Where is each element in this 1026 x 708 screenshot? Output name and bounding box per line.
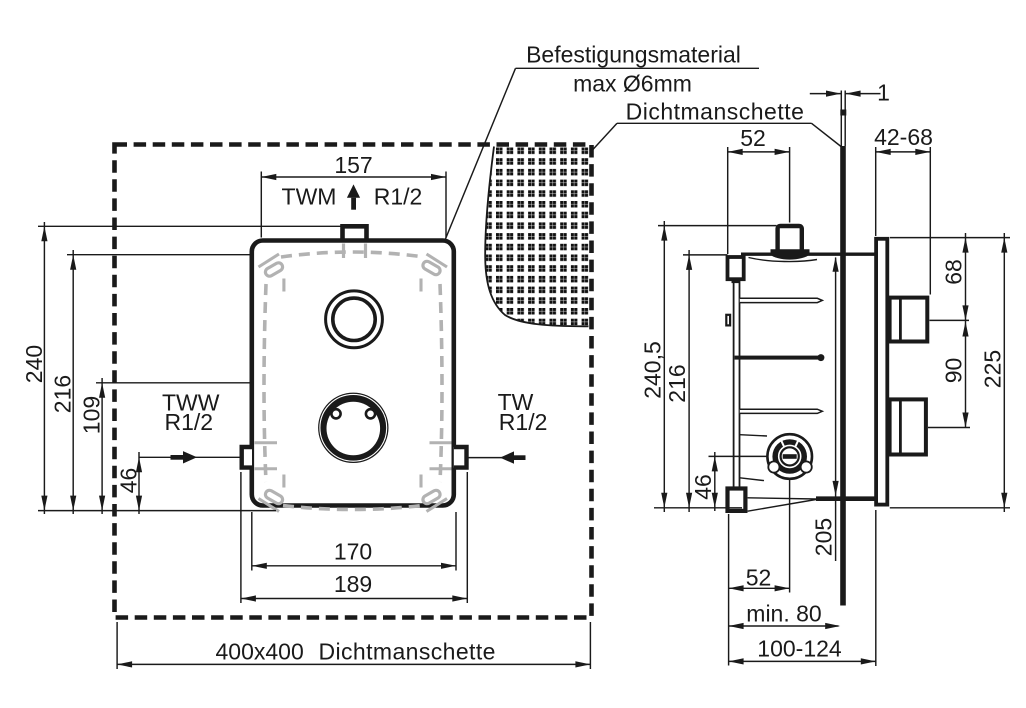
svg-text:R1/2: R1/2: [165, 409, 214, 435]
svg-text:max Ø6mm: max Ø6mm: [573, 71, 692, 97]
svg-text:R1/2: R1/2: [499, 409, 548, 435]
svg-text:TWM: TWM: [282, 183, 337, 209]
svg-text:R1/2: R1/2: [374, 183, 423, 209]
svg-text:109: 109: [79, 396, 105, 434]
svg-text:189: 189: [334, 571, 372, 597]
svg-text:240: 240: [21, 345, 47, 383]
svg-text:400x400: 400x400: [216, 638, 304, 664]
svg-text:min. 80: min. 80: [746, 601, 821, 627]
svg-text:216: 216: [664, 364, 690, 402]
svg-text:42-68: 42-68: [874, 124, 933, 150]
svg-text:Dichtmanschette: Dichtmanschette: [626, 98, 805, 124]
svg-text:46: 46: [116, 468, 142, 494]
svg-text:52: 52: [746, 565, 772, 591]
svg-text:46: 46: [690, 474, 716, 500]
svg-text:90: 90: [941, 358, 967, 384]
svg-text:216: 216: [50, 375, 76, 413]
svg-text:52: 52: [740, 125, 766, 151]
svg-text:100-124: 100-124: [757, 635, 842, 661]
svg-text:Befestigungsmaterial: Befestigungsmaterial: [526, 42, 741, 68]
svg-text:240,5: 240,5: [639, 341, 665, 399]
svg-text:225: 225: [979, 350, 1005, 388]
svg-text:1: 1: [877, 79, 890, 105]
svg-text:Dichtmanschette: Dichtmanschette: [319, 638, 496, 664]
svg-text:157: 157: [334, 152, 372, 178]
svg-text:68: 68: [941, 259, 967, 285]
svg-text:170: 170: [334, 539, 372, 565]
svg-text:205: 205: [811, 518, 837, 556]
